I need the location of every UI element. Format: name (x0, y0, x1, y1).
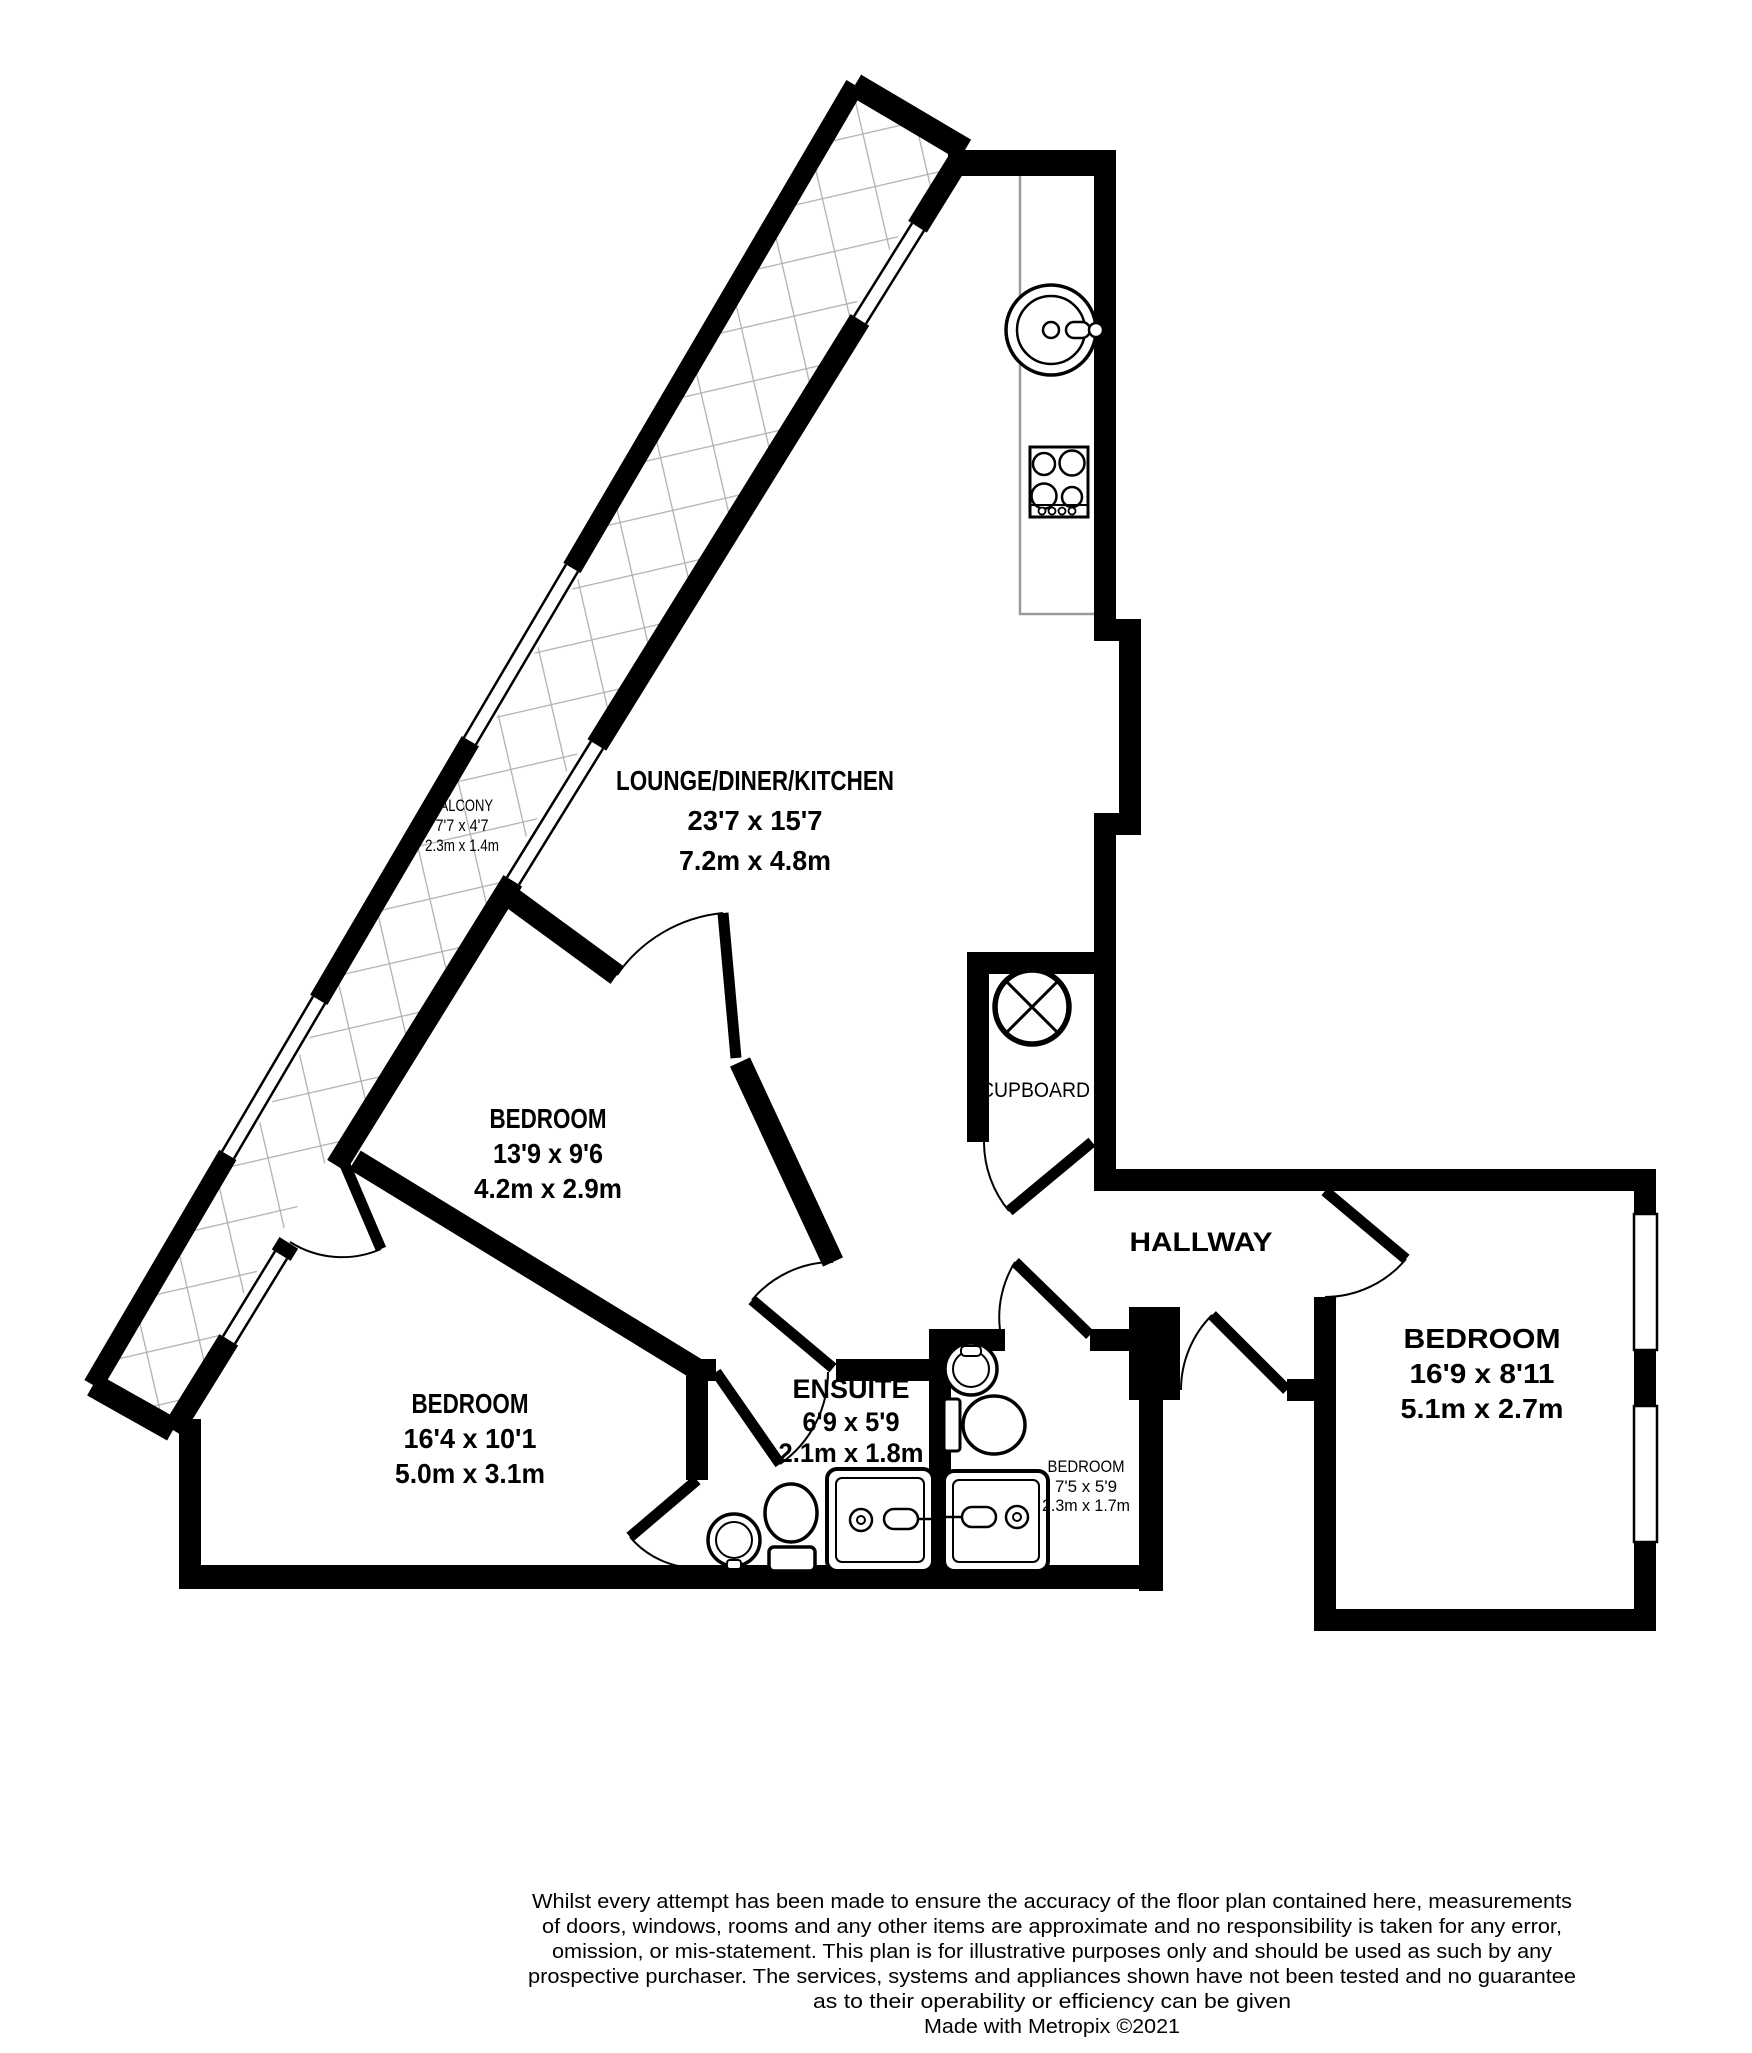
room-dim-metric-balcony: 2.3m x 1.4m (425, 836, 499, 855)
room-dim-imperial-balcony: 7'7 x 4'7 (436, 816, 489, 835)
room-dim-imperial-bathroom: 7'5 x 5'9 (1055, 1478, 1117, 1496)
room-label-hallway: HALLWAY (1130, 1227, 1273, 1257)
room-label-balcony: BALCONY (431, 796, 493, 815)
room-dim-imperial-ensuite: 6'9 x 5'9 (803, 1407, 900, 1437)
room-label-cupboard: CUPBOARD (980, 1079, 1090, 1102)
room-label-bedroom-middle: BEDROOM (490, 1103, 607, 1134)
water-cylinder-icon (995, 970, 1069, 1044)
window (1634, 1406, 1657, 1542)
basin-icon (708, 1514, 760, 1569)
toilet-icon (765, 1484, 817, 1571)
hob-icon (1030, 447, 1088, 517)
floor-plan-page: LOUNGE/DINER/KITCHEN 23'7 x 15'7 7.2m x … (0, 0, 1752, 2048)
room-dim-metric-lounge: 7.2m x 4.8m (679, 845, 831, 876)
room-dim-imperial-bedroom-left: 16'4 x 10'1 (404, 1423, 537, 1454)
room-dim-metric-bedroom-middle: 4.2m x 2.9m (474, 1173, 622, 1204)
room-dim-metric-bedroom-left: 5.0m x 3.1m (395, 1458, 545, 1489)
basin-icon (945, 1343, 997, 1395)
room-dim-metric-ensuite: 2.1m x 1.8m (779, 1438, 924, 1468)
credit-line: Made with Metropix ©2021 (924, 2015, 1180, 2038)
room-dim-imperial-bedroom-right: 16'9 x 8'11 (1410, 1358, 1555, 1389)
disclaimer-line: omission, or mis-statement. This plan is… (552, 1940, 1553, 1963)
room-label-ensuite: ENSUITE (793, 1374, 910, 1404)
room-dim-metric-bedroom-right: 5.1m x 2.7m (1401, 1393, 1564, 1424)
shower-icon (944, 1471, 1048, 1571)
disclaimer-line: Whilst every attempt has been made to en… (532, 1890, 1572, 1913)
shower-icon (827, 1469, 933, 1571)
room-label-lounge: LOUNGE/DINER/KITCHEN (616, 765, 894, 796)
disclaimer-line: prospective purchaser. The services, sys… (528, 1965, 1576, 1988)
disclaimer-line: as to their operability or efficiency ca… (813, 1990, 1291, 2013)
room-label-bedroom-left: BEDROOM (412, 1388, 529, 1419)
entrance-wall-pillar (1129, 1307, 1180, 1400)
room-label-bathroom: BEDROOM (1048, 1458, 1125, 1476)
disclaimer-line: of doors, windows, rooms and any other i… (542, 1915, 1562, 1938)
window (1634, 1214, 1657, 1350)
floor-plan: LOUNGE/DINER/KITCHEN 23'7 x 15'7 7.2m x … (0, 0, 1752, 2048)
toilet-icon (944, 1396, 1025, 1454)
room-dim-imperial-lounge: 23'7 x 15'7 (688, 805, 823, 836)
room-dim-imperial-bedroom-middle: 13'9 x 9'6 (493, 1138, 603, 1169)
room-label-bedroom-right: BEDROOM (1404, 1323, 1561, 1354)
room-dim-metric-bathroom: 2.3m x 1.7m (1042, 1497, 1130, 1515)
